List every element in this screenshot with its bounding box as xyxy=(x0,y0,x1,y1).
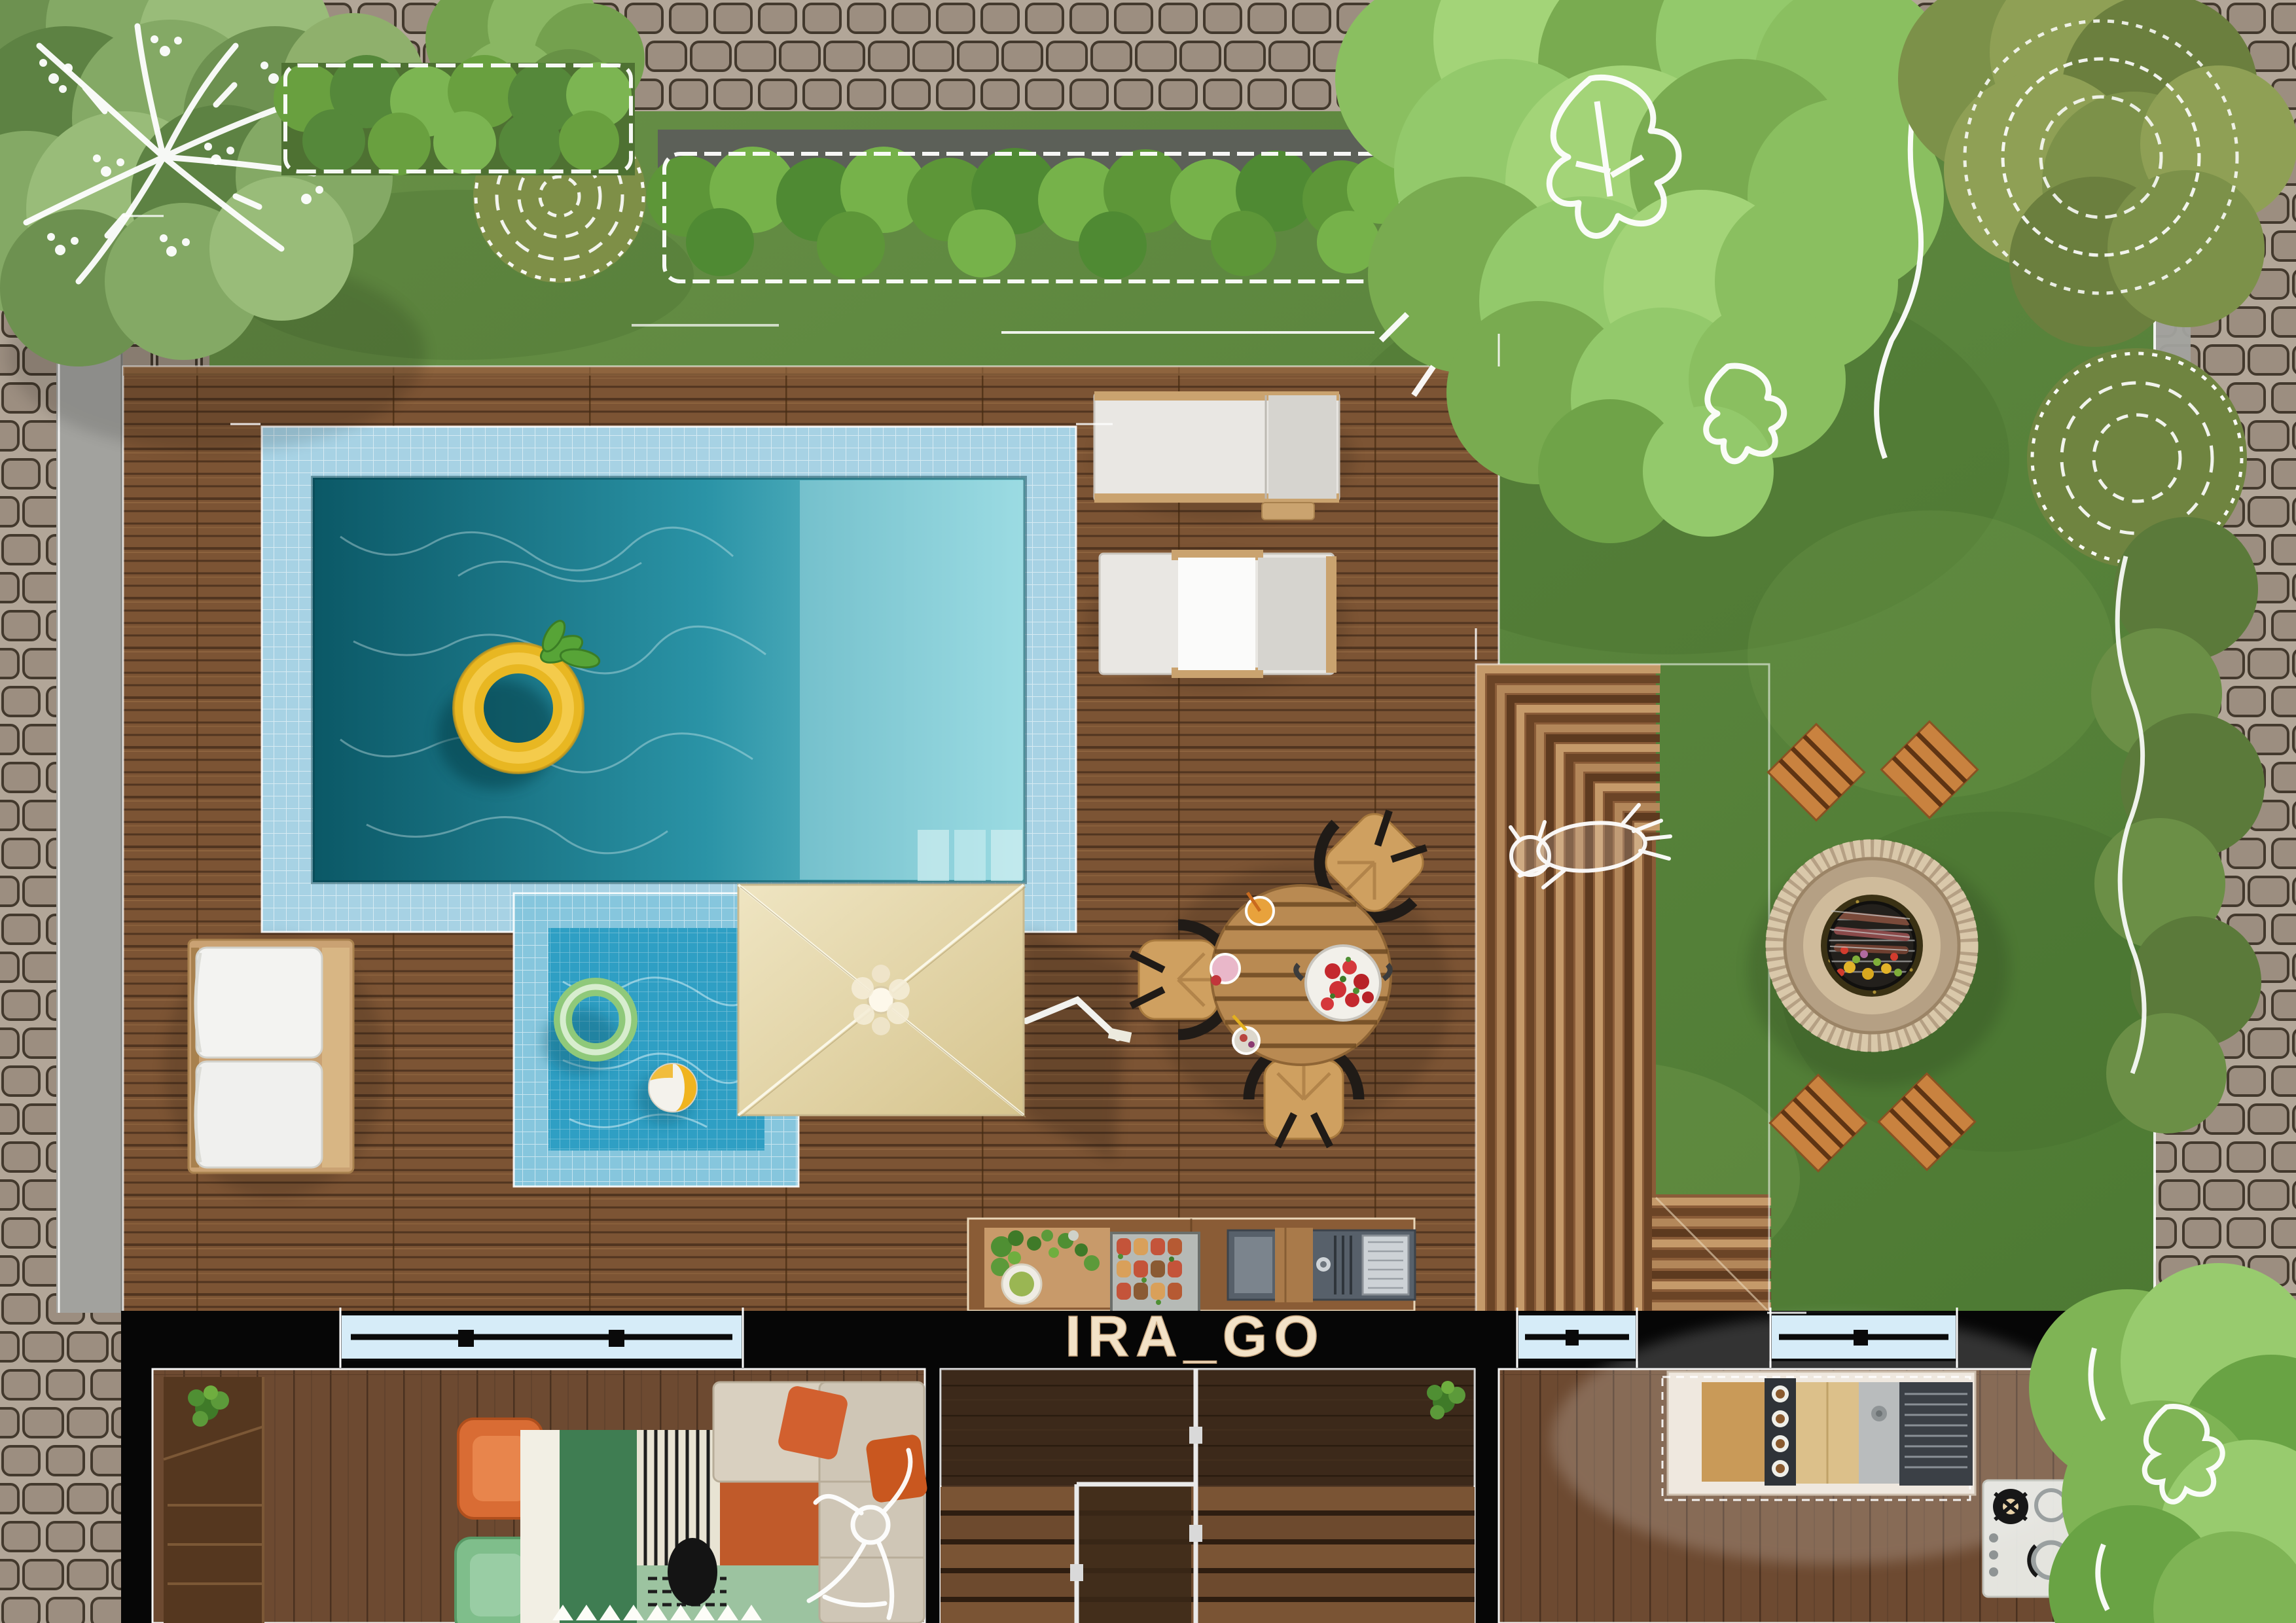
watermark-text: IRA_GO xyxy=(1065,1304,1325,1368)
sun-lounger xyxy=(1093,391,1355,520)
stairs xyxy=(941,1487,1475,1623)
bruschetta-tray xyxy=(1111,1233,1199,1314)
outdoor-sofa xyxy=(164,936,386,1198)
tree xyxy=(2029,1263,2296,1623)
swimming-pool xyxy=(262,427,1076,932)
side-table xyxy=(1262,503,1314,520)
house: IRA_GO xyxy=(121,1304,2153,1623)
hedge xyxy=(274,55,635,175)
window xyxy=(340,1308,743,1368)
veggie-board xyxy=(984,1228,1110,1308)
kitchen-island xyxy=(1662,1372,1975,1500)
sun-lounger xyxy=(1086,550,1348,690)
window xyxy=(1517,1308,1637,1368)
landscape-plan: IRA_GO xyxy=(0,0,2296,1623)
outdoor-kitchen-counter xyxy=(968,1219,1415,1314)
house-living-room xyxy=(152,1369,928,1623)
counter-sink xyxy=(1228,1228,1415,1302)
window xyxy=(1770,1308,1957,1368)
house-stair-hall xyxy=(941,1369,1475,1623)
